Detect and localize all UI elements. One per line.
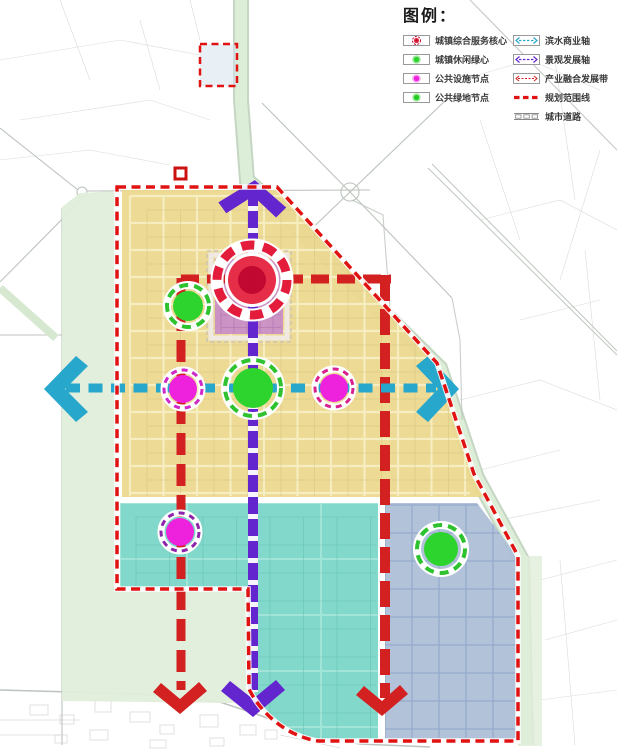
waterfront-axis-icon bbox=[513, 35, 540, 46]
master-plan-page: 图例： 城镇综合服务核心 城镇休闲绿心 bbox=[0, 0, 617, 750]
legend-item-leisure-green: 城镇休闲绿心 bbox=[403, 54, 513, 65]
legend-item-city-road: 城市道路 bbox=[513, 111, 608, 122]
legend-item-landscape-axis: 景观发展轴 bbox=[513, 54, 608, 65]
node-public-green-southeast bbox=[417, 525, 465, 573]
legend-right-column: 滨水商业轴 景观发展轴 产业融合发展带 bbox=[513, 35, 608, 122]
leisure-green-icon bbox=[403, 54, 430, 65]
reserved-site-box bbox=[200, 44, 237, 86]
legend: 图例： 城镇综合服务核心 城镇休闲绿心 bbox=[403, 2, 617, 122]
node-facility-east bbox=[315, 369, 353, 407]
node-facility-west bbox=[164, 370, 202, 408]
legend-label: 景观发展轴 bbox=[545, 53, 590, 66]
industry-belt-icon bbox=[513, 73, 540, 84]
site-marker-square bbox=[175, 168, 186, 179]
legend-item-green-node: 公共绿地节点 bbox=[403, 92, 513, 103]
node-leisure-green bbox=[167, 285, 209, 327]
legend-label: 滨水商业轴 bbox=[545, 34, 590, 47]
west-green-band bbox=[0, 288, 56, 338]
zone-green-buffer-east bbox=[518, 556, 542, 746]
facility-node-icon bbox=[403, 73, 430, 84]
landscape-axis-icon bbox=[513, 54, 540, 65]
legend-item-boundary-line: 规划范围线 bbox=[513, 92, 608, 103]
legend-label: 城市道路 bbox=[545, 110, 581, 123]
boundary-line-icon bbox=[513, 92, 540, 103]
legend-label: 公共绿地节点 bbox=[435, 91, 489, 104]
legend-label: 城镇休闲绿心 bbox=[435, 53, 489, 66]
legend-title: 图例： bbox=[403, 2, 617, 26]
legend-item-facility-node: 公共设施节点 bbox=[403, 73, 513, 84]
legend-label: 公共设施节点 bbox=[435, 72, 489, 85]
node-facility-south bbox=[161, 513, 199, 551]
green-node-icon bbox=[403, 92, 430, 103]
legend-item-waterfront-axis: 滨水商业轴 bbox=[513, 35, 608, 46]
legend-label: 城镇综合服务核心 bbox=[435, 34, 507, 47]
node-public-green-center bbox=[225, 360, 281, 416]
legend-label: 规划范围线 bbox=[545, 91, 590, 104]
service-core-icon bbox=[403, 35, 430, 46]
city-road-icon bbox=[513, 111, 540, 122]
zone-yellow-town bbox=[122, 190, 483, 497]
legend-item-industry-belt: 产业融合发展带 bbox=[513, 73, 608, 84]
legend-label: 产业融合发展带 bbox=[545, 72, 608, 85]
legend-item-service-core: 城镇综合服务核心 bbox=[403, 35, 513, 46]
legend-left-column: 城镇综合服务核心 城镇休闲绿心 公共设施节点 bbox=[403, 35, 513, 122]
node-service-core bbox=[217, 245, 287, 315]
